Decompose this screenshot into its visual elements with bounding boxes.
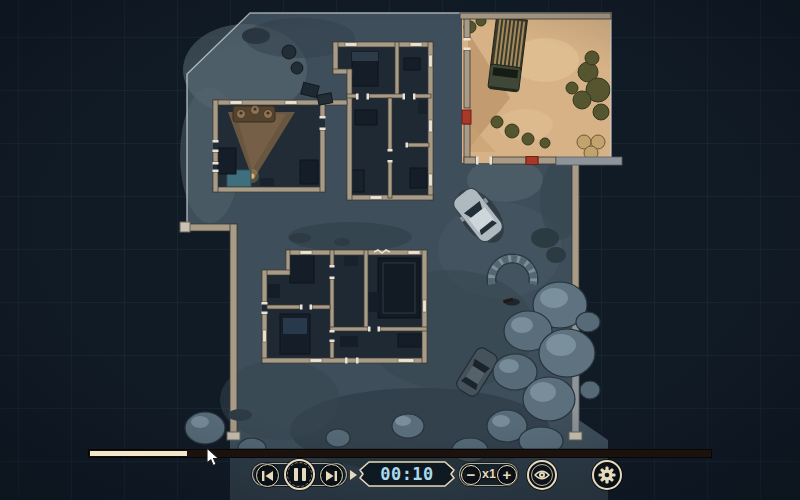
- view-toggle-button[interactable]: [527, 460, 557, 490]
- minus-icon: −: [467, 467, 476, 482]
- skip-forward-icon: [326, 471, 337, 481]
- pause-icon: [294, 468, 306, 481]
- mouse-cursor: [206, 447, 220, 467]
- skip-back-icon: [262, 471, 273, 481]
- tactical-map[interactable]: [0, 0, 800, 500]
- timer-display: 00:10: [356, 460, 458, 488]
- timeline-fill: [90, 451, 187, 456]
- settings-button[interactable]: [592, 460, 622, 490]
- gear-icon: [598, 466, 616, 484]
- pause-button[interactable]: [284, 459, 315, 490]
- skip-forward-button[interactable]: [320, 464, 343, 487]
- skip-back-button[interactable]: [256, 464, 279, 487]
- game-viewport[interactable]: { "scene": { "description": "top-down ta…: [0, 0, 800, 500]
- eye-icon: [531, 464, 553, 486]
- plus-icon: +: [503, 467, 512, 482]
- timer-value: 00:10: [380, 464, 434, 484]
- speed-value: x1: [477, 467, 501, 481]
- timeline-track[interactable]: [88, 449, 712, 458]
- vignette: [0, 0, 800, 500]
